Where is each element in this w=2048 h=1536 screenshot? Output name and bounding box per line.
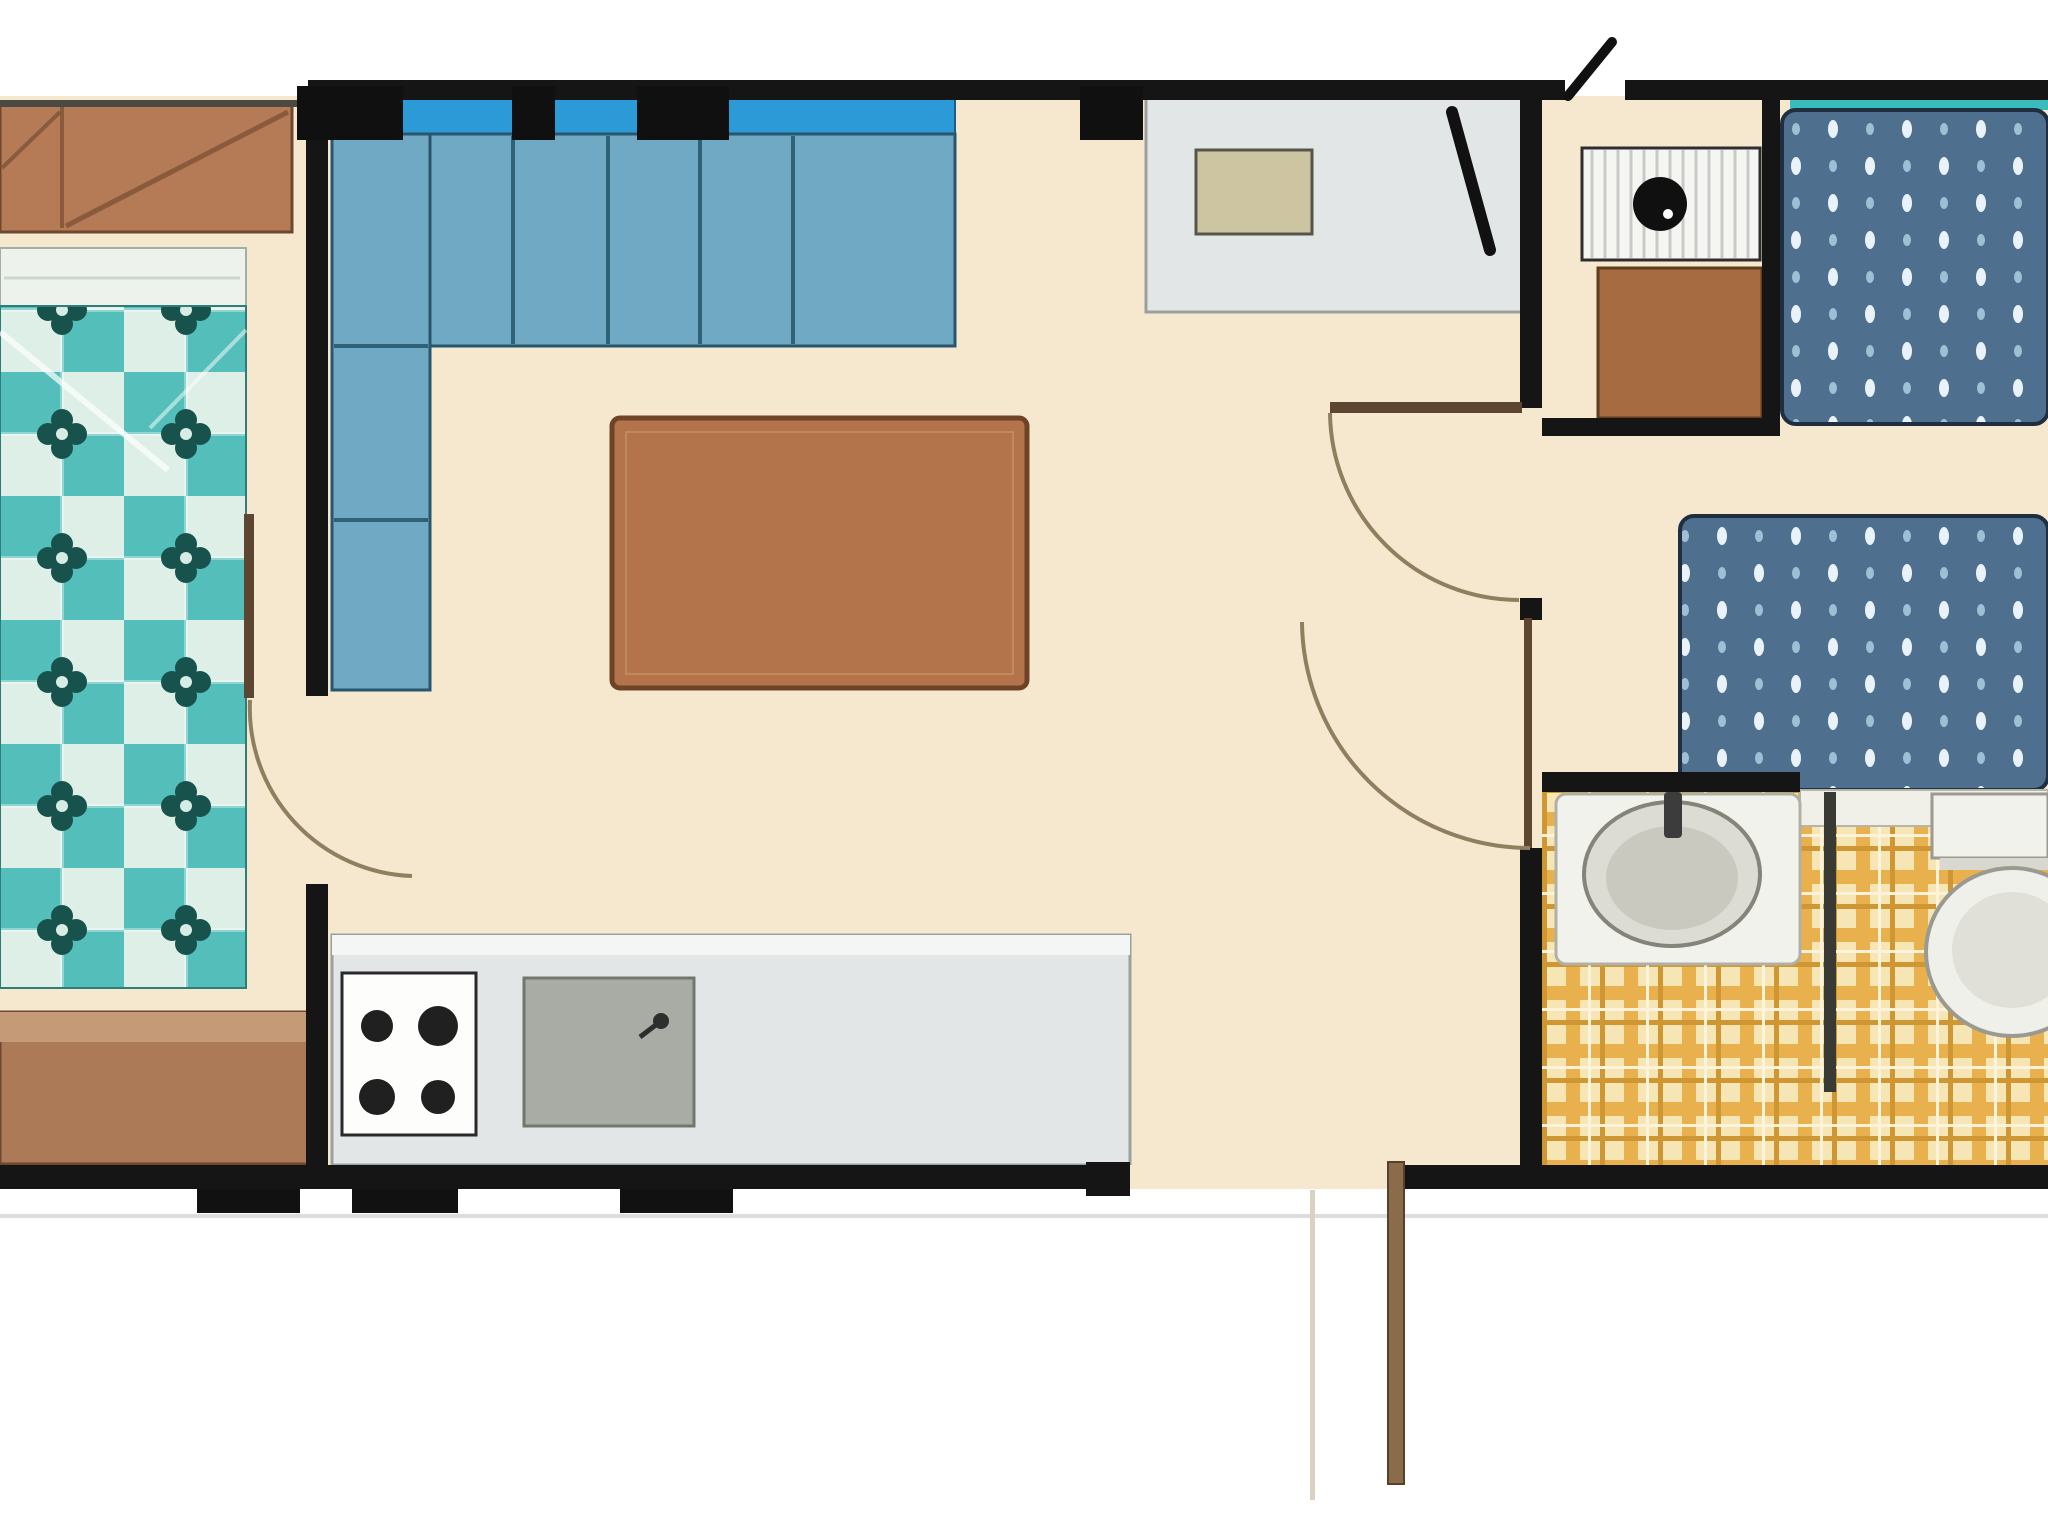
wall-hall-lower bbox=[1520, 848, 1542, 1165]
wall-bottom-right bbox=[1404, 1165, 2048, 1189]
window-block bbox=[297, 86, 403, 140]
hob-burner bbox=[359, 1079, 395, 1115]
wash-basin-bowl bbox=[1606, 826, 1738, 930]
chassis-step-mark bbox=[620, 1189, 733, 1213]
wall-hall-stub bbox=[1520, 598, 1542, 620]
window-block bbox=[1080, 86, 1143, 140]
cabinet-beige-front bbox=[1196, 150, 1312, 234]
single-bed-bottom bbox=[1680, 516, 2048, 790]
entrance-frame-line bbox=[1310, 1190, 1315, 1500]
chassis-step-mark bbox=[197, 1189, 300, 1213]
bathroom-divider-wall bbox=[1824, 792, 1836, 1092]
window-block bbox=[637, 86, 729, 140]
wall-cupboard-right bbox=[1762, 98, 1780, 436]
wall-cupboard-bottom bbox=[1542, 418, 1780, 436]
floorplan-page bbox=[0, 0, 2048, 1536]
entrance-doorway-gap bbox=[1130, 1165, 1388, 1189]
hob-burner bbox=[421, 1080, 455, 1114]
four-burner-hob bbox=[342, 973, 476, 1135]
wall-bottom-left bbox=[0, 1165, 1130, 1189]
appliance-dot-highlight bbox=[1663, 209, 1673, 219]
ground-shadow-line bbox=[0, 1214, 2048, 1218]
bathroom-door-leaf bbox=[1524, 618, 1532, 848]
worktop-front-edge bbox=[332, 935, 1130, 955]
chest-top-edge bbox=[0, 1012, 310, 1042]
wall-bedroom-upper bbox=[306, 100, 328, 696]
window-block bbox=[512, 86, 555, 140]
room-bathroom bbox=[1542, 790, 2048, 1165]
hob-burner bbox=[418, 1006, 458, 1046]
wall-top bbox=[1625, 80, 2048, 100]
wall-bedroom-lower bbox=[306, 884, 328, 1165]
hob-burner bbox=[361, 1010, 393, 1042]
basin-tap bbox=[1664, 792, 1682, 838]
wall-top-thin bbox=[0, 100, 308, 107]
storage-brown-cabinet bbox=[1598, 268, 1762, 418]
wall-bathroom-top bbox=[1542, 772, 1800, 792]
appliance-dot bbox=[1633, 177, 1687, 231]
bedroom-door-leaf bbox=[244, 514, 254, 698]
sofa-left-arm bbox=[332, 134, 430, 690]
wall-top bbox=[308, 80, 1565, 100]
sofa-top-seats bbox=[430, 134, 955, 346]
double-bed-quilt bbox=[0, 306, 246, 988]
entrance-door-open-leaf bbox=[1388, 1162, 1404, 1484]
floorplan-canvas bbox=[0, 0, 2048, 1536]
twin-bedroom-door-leaf bbox=[1330, 402, 1522, 413]
toilet-cistern bbox=[1932, 794, 2048, 858]
coffee-table bbox=[612, 418, 1027, 688]
chassis-step-mark bbox=[352, 1189, 458, 1213]
overhead-wardrobe bbox=[0, 102, 292, 232]
wall-bottom-end-block bbox=[1086, 1162, 1130, 1196]
wall-hall-upper bbox=[1520, 98, 1542, 408]
kitchen-sink bbox=[524, 978, 694, 1126]
room-storage-cupboard bbox=[1582, 148, 1762, 418]
single-bed-top bbox=[1782, 110, 2048, 424]
